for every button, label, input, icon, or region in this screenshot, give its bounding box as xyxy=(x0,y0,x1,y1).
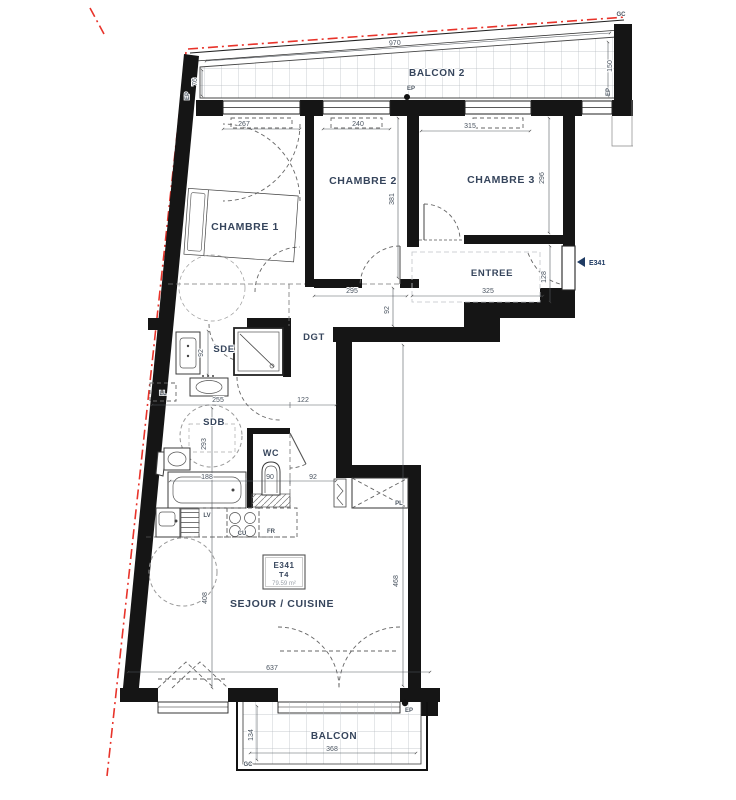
equip-pl: PL xyxy=(395,501,403,507)
dim-sejour-right: 468 xyxy=(393,575,400,587)
door-chambre3 xyxy=(424,204,460,240)
floor-plan: E341 T4 79.59 m² E341 BALCON 2 CHAMBRE 1… xyxy=(0,0,736,800)
site-marks: EP EP EP EP GC GC xyxy=(185,12,626,768)
drainer-icon xyxy=(181,509,199,537)
dim-wc-width: 90 xyxy=(266,474,274,481)
dim-sejour-width: 637 xyxy=(266,665,278,672)
entry-door-leaf xyxy=(562,246,575,290)
window-sejour xyxy=(158,662,228,713)
window-neighbor xyxy=(582,101,612,114)
room-label-chambre3: CHAMBRE 3 xyxy=(467,174,535,186)
room-label-entree: ENTREE xyxy=(471,268,513,279)
unit-code: E341 xyxy=(273,561,294,570)
floor-plan-svg: E341 T4 79.59 m² E341 BALCON 2 CHAMBRE 1… xyxy=(0,0,736,800)
dim-entree-door: 128 xyxy=(541,271,548,283)
dim-entree-width: 325 xyxy=(482,288,494,295)
windows xyxy=(158,101,612,713)
dim-chambre3-depth: 296 xyxy=(539,172,546,184)
mark-ep-4: EP xyxy=(405,708,413,714)
window-chambre1 xyxy=(223,101,300,128)
unit-type: T4 xyxy=(279,570,289,579)
fridge-box xyxy=(259,508,297,537)
west-diagonal-wall xyxy=(122,54,199,698)
dim-balcon2-depth: 150 xyxy=(607,60,614,72)
entry-arrow-icon xyxy=(577,257,585,267)
dim-hall-width: 295 xyxy=(346,288,358,295)
unit-info-box: E341 T4 79.59 m² xyxy=(263,555,305,589)
dim-hall-depth: 92 xyxy=(384,306,391,314)
dim-sdb-depth: 293 xyxy=(201,438,208,450)
wc-shelf xyxy=(252,494,290,507)
room-label-sdb: SDB xyxy=(203,417,225,428)
balcony2-right-wall xyxy=(614,24,632,100)
door-chambre1 xyxy=(255,247,300,292)
mark-gc-1: GC xyxy=(617,12,627,18)
dim-chambre1-width: 267 xyxy=(238,121,250,128)
dim-balcon2-left: 76 xyxy=(192,78,199,86)
dim-sde-depth: 92 xyxy=(198,349,205,357)
equip-cu: CU xyxy=(238,531,247,537)
equip-fr: FR xyxy=(267,529,276,535)
mark-gc-2: GC xyxy=(244,762,254,768)
wall-ch3-east xyxy=(563,116,575,246)
entry-marker: E341 xyxy=(577,257,605,267)
dim-corridor-width: 92 xyxy=(309,474,317,481)
french-door-balcon xyxy=(278,627,400,713)
door-sdb xyxy=(237,377,280,420)
dim-balcon-depth: 134 xyxy=(248,729,255,741)
equip-lv: LV xyxy=(203,513,210,519)
dim-chambre3-width: 315 xyxy=(464,123,476,130)
room-label-wc: WC xyxy=(263,448,279,458)
wall-ch2-ch3 xyxy=(407,116,419,247)
unit-area: 79.59 m² xyxy=(272,581,296,587)
ep-marker-icon xyxy=(404,94,410,100)
entry-door-label: E341 xyxy=(589,260,605,267)
room-label-dgt: DGT xyxy=(303,332,325,343)
room-label-balcon: BALCON xyxy=(311,731,357,742)
bedroom1-furniture xyxy=(179,188,298,321)
ep-marker-icon xyxy=(402,700,408,706)
room-label-sde: SDE xyxy=(213,344,234,355)
wall-ch1-ch2 xyxy=(305,116,314,287)
dim-chambre2-width: 240 xyxy=(352,121,364,128)
door-chambre2 xyxy=(360,246,400,286)
dim-sdb-width: 255 xyxy=(212,397,224,404)
sejour-east-wall xyxy=(408,478,421,690)
dim-bath-length: 188 xyxy=(201,474,213,481)
dim-balcon2-width: 970 xyxy=(389,40,401,48)
ceiling-light-ch1 xyxy=(179,255,245,321)
room-label-chambre1: CHAMBRE 1 xyxy=(211,221,279,233)
duct-box xyxy=(334,479,346,507)
room-label-balcon2: BALCON 2 xyxy=(409,68,465,79)
mark-ep-2: EP xyxy=(407,86,415,92)
equip-ll: LL xyxy=(159,391,167,397)
dim-sejour-left: 408 xyxy=(202,592,209,604)
door-wc xyxy=(290,464,306,468)
dim-dgt-width: 122 xyxy=(297,397,309,404)
mark-ep-1: EP xyxy=(185,92,191,100)
room-label-sejour: SEJOUR / CUISINE xyxy=(230,598,334,610)
dim-balcon-width: 368 xyxy=(326,746,338,753)
mark-ep-3: EP xyxy=(606,88,612,96)
dim-chambre2-depth: 381 xyxy=(389,193,396,205)
room-label-chambre2: CHAMBRE 2 xyxy=(329,175,397,187)
